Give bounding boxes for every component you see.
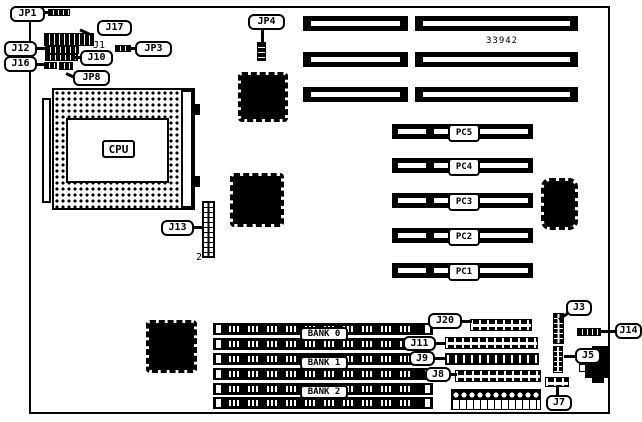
callout-jp8: JP8 (73, 70, 110, 86)
pci-slot-label: PC2 (448, 228, 480, 246)
pci-slot-pc2: PC2 (392, 228, 533, 243)
callout-j11: J11 (403, 336, 436, 351)
motherboard-diagram: J1 CPU 2 33942 PC5 PC4 PC3 PC2 PC1 (0, 0, 642, 422)
isa-slot-1-short (303, 16, 408, 31)
jp1-connector (48, 9, 70, 16)
power-connector-body (451, 399, 541, 410)
callout-j16: J16 (4, 56, 37, 72)
callout-jp4: JP4 (248, 14, 285, 30)
callout-j17: J17 (97, 20, 132, 36)
j11-connector (445, 337, 538, 349)
cpu-right-bar (181, 90, 193, 208)
callout-j7: J7 (546, 395, 572, 411)
callout-j5: J5 (575, 348, 601, 364)
j20-connector (470, 319, 532, 331)
j14-connector (577, 328, 601, 336)
isa-slot-3-long (415, 87, 578, 102)
pci-slot-label: PC4 (448, 158, 480, 176)
callout-j9: J9 (409, 351, 435, 366)
callout-jp1: JP1 (10, 6, 45, 22)
isa-slot-1-long (415, 16, 578, 31)
pci-slot-pc3: PC3 (392, 193, 533, 208)
cpu-tab-bottom (194, 176, 200, 187)
j8-connector (455, 370, 541, 382)
callout-j10: J10 (80, 50, 113, 66)
callout-j8: J8 (425, 367, 451, 382)
bank0-label: BANK 0 (300, 327, 348, 341)
pci-slot-pc1: PC1 (392, 263, 533, 278)
ic-chip-bottom-left (146, 320, 197, 373)
cpu-socket: CPU (52, 88, 195, 210)
pci-slot-label: PC1 (448, 263, 480, 281)
j10-connector (45, 54, 78, 61)
jp8-connector (59, 62, 73, 70)
part-number: 33942 (486, 37, 518, 46)
j13-pin2-text: 2 (196, 253, 202, 263)
pci-slot-label: PC5 (448, 124, 480, 142)
jp4-pointer (261, 28, 264, 43)
keyboard-connector (592, 378, 604, 383)
ic-chip-right (541, 178, 578, 230)
callout-j14: J14 (615, 323, 642, 339)
bank1-label: BANK 1 (300, 356, 348, 370)
pci-slot-label: PC3 (448, 193, 480, 211)
ic-chip-middle (230, 173, 284, 227)
isa-slot-3-short (303, 87, 408, 102)
callout-j12: J12 (4, 41, 37, 57)
callout-j20: J20 (428, 313, 462, 329)
isa-slot-2-short (303, 52, 408, 67)
callout-j3: J3 (566, 300, 592, 316)
pci-slot-pc4: PC4 (392, 158, 533, 173)
cpu-lever-bar (42, 98, 51, 203)
cpu-label: CPU (102, 140, 135, 158)
callout-j13: J13 (161, 220, 194, 236)
isa-slot-2-long (415, 52, 578, 67)
bank2-label: BANK 2 (300, 385, 348, 399)
pci-slot-pc5: PC5 (392, 124, 533, 139)
j12-connector (45, 46, 79, 54)
j9-connector (445, 353, 539, 365)
callout-jp3: JP3 (135, 41, 172, 57)
ic-chip-top (238, 72, 288, 122)
j5-connector (553, 346, 563, 373)
jp4-connector (257, 42, 266, 61)
power-connector-pins (451, 389, 541, 399)
j13-connector (202, 201, 215, 258)
cpu-tab-top (194, 104, 200, 115)
